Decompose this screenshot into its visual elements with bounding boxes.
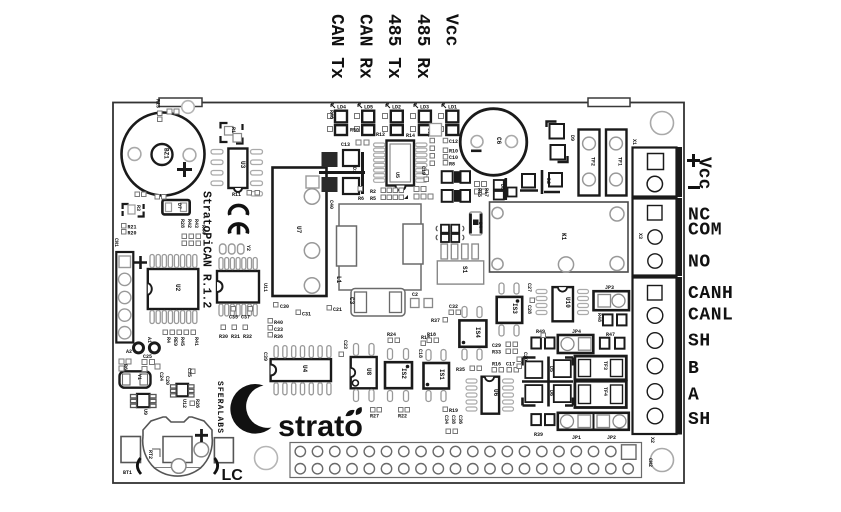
svg-text:R37: R37 xyxy=(431,318,440,324)
svg-text:IS3: IS3 xyxy=(511,303,518,314)
svg-text:TF4: TF4 xyxy=(602,387,608,396)
svg-text:JP2: JP2 xyxy=(607,435,616,441)
svg-text:SH: SH xyxy=(688,332,711,352)
svg-text:U9: U9 xyxy=(142,409,148,415)
svg-text:U3: U3 xyxy=(239,161,246,169)
svg-text:R12: R12 xyxy=(376,132,385,138)
svg-text:C13: C13 xyxy=(341,142,350,148)
svg-text:U7: U7 xyxy=(295,226,302,234)
svg-text:R5: R5 xyxy=(370,196,376,202)
svg-text:R18: R18 xyxy=(427,332,436,338)
svg-text:CAN Tx: CAN Tx xyxy=(326,14,346,79)
svg-text:R30 R31 R32: R30 R31 R32 xyxy=(219,334,252,340)
svg-text:R48: R48 xyxy=(596,313,602,322)
svg-text:U5: U5 xyxy=(394,172,400,178)
svg-text:S1: S1 xyxy=(461,266,468,274)
svg-text:C25: C25 xyxy=(143,354,152,360)
svg-text:R27: R27 xyxy=(370,414,379,420)
svg-text:D4: D4 xyxy=(477,222,483,228)
svg-text:R16: R16 xyxy=(492,362,501,368)
svg-text:D5: D5 xyxy=(548,366,554,372)
svg-text:C3: C3 xyxy=(348,297,355,305)
svg-text:LC: LC xyxy=(222,467,244,484)
svg-text:X1: X1 xyxy=(631,139,637,145)
svg-text:BT1: BT1 xyxy=(123,470,132,476)
svg-text:Y2: Y2 xyxy=(245,245,251,251)
svg-text:X2: X2 xyxy=(649,437,655,443)
svg-text:C20: C20 xyxy=(522,352,528,361)
svg-text:C35: C35 xyxy=(186,368,192,377)
svg-text:R17: R17 xyxy=(483,188,489,197)
svg-text:LD3: LD3 xyxy=(420,105,429,111)
svg-text:IS2: IS2 xyxy=(400,368,407,379)
svg-text:R10: R10 xyxy=(449,149,458,155)
svg-text:R45: R45 xyxy=(179,337,185,346)
svg-text:R41: R41 xyxy=(193,337,199,346)
svg-text:485 Rx: 485 Rx xyxy=(412,14,432,79)
svg-text:CN2: CN2 xyxy=(647,458,653,467)
svg-text:R35: R35 xyxy=(456,367,465,373)
svg-text:U10: U10 xyxy=(564,297,571,308)
svg-text:C28: C28 xyxy=(526,305,532,314)
svg-text:C27: C27 xyxy=(526,283,532,292)
svg-text:Y1: Y1 xyxy=(136,374,142,380)
svg-text:C10: C10 xyxy=(449,155,458,161)
svg-text:LD1: LD1 xyxy=(448,105,457,111)
svg-text:R4: R4 xyxy=(165,337,171,343)
svg-text:L1: L1 xyxy=(335,276,342,284)
svg-text:C17: C17 xyxy=(506,362,515,368)
svg-text:R24: R24 xyxy=(387,332,396,338)
svg-text:R40: R40 xyxy=(274,320,283,326)
svg-text:R8: R8 xyxy=(449,162,455,168)
svg-text:R20: R20 xyxy=(128,231,137,237)
svg-text:C31: C31 xyxy=(302,312,311,318)
svg-text:TF2: TF2 xyxy=(590,157,596,166)
svg-text:LD4: LD4 xyxy=(337,105,346,111)
svg-text:C34: C34 xyxy=(443,415,449,424)
svg-text:CN1: CN1 xyxy=(113,238,119,247)
svg-text:BZ1: BZ1 xyxy=(163,148,170,159)
svg-text:R36: R36 xyxy=(274,334,283,340)
svg-text:R3: R3 xyxy=(135,205,141,211)
svg-text:LD2: LD2 xyxy=(392,105,401,111)
svg-text:A1: A1 xyxy=(146,337,152,343)
svg-text:R28: R28 xyxy=(179,219,185,228)
svg-text:CANH: CANH xyxy=(688,284,733,304)
svg-text:R1: R1 xyxy=(230,127,236,133)
svg-text:SFERALABS: SFERALABS xyxy=(215,381,224,434)
svg-text:D6: D6 xyxy=(548,390,554,396)
svg-text:R50: R50 xyxy=(350,128,359,134)
svg-text:C24: C24 xyxy=(158,372,164,381)
svg-text:R44: R44 xyxy=(200,225,206,234)
svg-text:C35 C37: C35 C37 xyxy=(229,315,250,321)
svg-text:RT2: RT2 xyxy=(147,450,153,459)
svg-text:C21: C21 xyxy=(333,307,342,313)
svg-text:R6: R6 xyxy=(358,196,364,202)
svg-text:U4: U4 xyxy=(301,365,308,373)
svg-text:C19: C19 xyxy=(420,166,426,175)
svg-text:D7: D7 xyxy=(176,203,182,209)
svg-text:C2: C2 xyxy=(412,292,418,298)
svg-text:R15: R15 xyxy=(476,188,482,197)
svg-text:R46: R46 xyxy=(328,110,334,119)
svg-text:TF3: TF3 xyxy=(602,361,608,370)
svg-text:SH: SH xyxy=(688,410,711,430)
svg-text:RE9: RE9 xyxy=(172,337,178,346)
svg-text:C33: C33 xyxy=(274,327,283,333)
svg-text:CANL: CANL xyxy=(688,306,733,326)
svg-text:LD5: LD5 xyxy=(364,105,373,111)
svg-text:C29: C29 xyxy=(492,343,501,349)
svg-text:C32: C32 xyxy=(449,304,458,310)
svg-text:Vcc: Vcc xyxy=(441,14,461,46)
svg-text:U12: U12 xyxy=(181,399,187,408)
svg-text:R2: R2 xyxy=(370,189,376,195)
svg-text:R39: R39 xyxy=(534,432,543,438)
svg-text:R13: R13 xyxy=(155,99,161,108)
svg-text:D9: D9 xyxy=(569,135,575,141)
svg-text:StratoPiCAN R.1.2: StratoPiCAN R.1.2 xyxy=(200,191,213,308)
svg-text:C39: C39 xyxy=(262,352,268,361)
svg-text:B6: B6 xyxy=(122,364,128,370)
svg-text:C36: C36 xyxy=(457,415,463,424)
svg-text:C18: C18 xyxy=(417,349,423,358)
svg-text:R22: R22 xyxy=(398,414,407,420)
svg-text:D8: D8 xyxy=(499,184,505,190)
svg-text:C30: C30 xyxy=(280,304,289,310)
svg-text:COM: COM xyxy=(688,221,722,241)
svg-text:R19: R19 xyxy=(449,408,458,414)
svg-text:A: A xyxy=(688,386,699,406)
svg-text:D1: D1 xyxy=(351,167,357,173)
svg-text:JP1: JP1 xyxy=(572,435,581,441)
svg-text:A2: A2 xyxy=(126,349,132,355)
svg-text:C23: C23 xyxy=(342,340,348,349)
svg-text:Vcc: Vcc xyxy=(694,157,714,189)
svg-text:C38: C38 xyxy=(450,415,456,424)
svg-text:R11: R11 xyxy=(232,192,241,198)
svg-text:R14: R14 xyxy=(406,133,415,139)
svg-text:C20: C20 xyxy=(164,376,170,385)
svg-text:B: B xyxy=(688,359,699,379)
svg-text:IS1: IS1 xyxy=(438,369,445,380)
svg-text:C12: C12 xyxy=(449,139,458,145)
svg-text:R42: R42 xyxy=(186,219,192,228)
svg-text:CAN Rx: CAN Rx xyxy=(355,14,375,79)
svg-text:U6: U6 xyxy=(492,389,499,397)
svg-text:U11: U11 xyxy=(262,283,268,292)
svg-text:NO: NO xyxy=(688,253,711,273)
svg-text:U2: U2 xyxy=(174,284,181,292)
svg-text:U8: U8 xyxy=(365,368,372,376)
svg-text:485 Tx: 485 Tx xyxy=(383,14,403,79)
svg-text:IS4: IS4 xyxy=(474,327,481,338)
svg-text:R43: R43 xyxy=(193,219,199,228)
svg-text:C40: C40 xyxy=(328,200,334,209)
svg-text:TF1: TF1 xyxy=(617,157,623,166)
svg-text:C6: C6 xyxy=(495,137,502,145)
svg-text:K1: K1 xyxy=(560,233,567,241)
svg-text:D2: D2 xyxy=(545,178,551,184)
svg-text:R33: R33 xyxy=(492,350,501,356)
svg-text:X3: X3 xyxy=(637,233,643,239)
